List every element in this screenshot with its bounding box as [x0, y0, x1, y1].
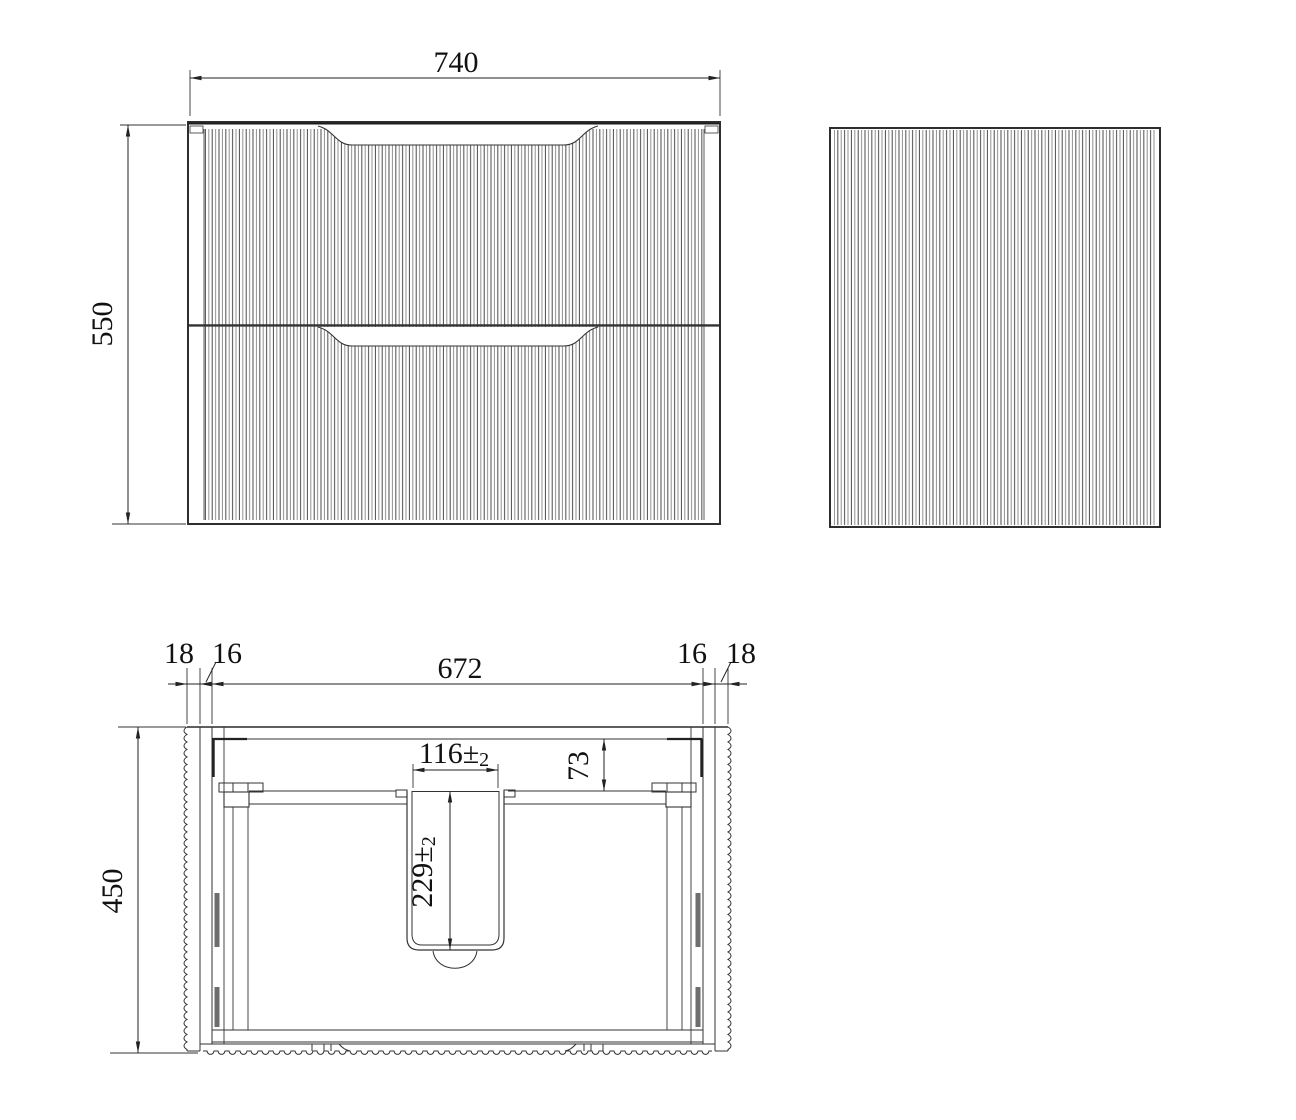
front-width-value: 740 — [434, 46, 479, 79]
side-view — [830, 128, 1160, 527]
gap-left-value: 16 — [212, 637, 242, 670]
technical-drawing-canvas: 740 550 — [0, 0, 1296, 1120]
drawing-sheet: 740 550 — [0, 0, 1296, 1120]
basin-width-tolerance: 2 — [479, 749, 489, 771]
panel-right-value: 18 — [726, 637, 756, 670]
right-drawer-slide — [696, 893, 701, 947]
basin-depth-value: 229±2 — [406, 836, 440, 907]
inner-width-value: 672 — [438, 652, 483, 685]
basin-depth-tolerance: 2 — [418, 836, 440, 846]
basin-depth-main: 229± — [406, 846, 439, 907]
basin-width-main: 116± — [419, 737, 479, 770]
basin-offset-value: 73 — [562, 751, 595, 781]
drawer1-handle-recess-fill — [318, 126, 598, 145]
front-view — [188, 122, 720, 524]
left-drawer-slide — [215, 987, 220, 1027]
panel-left-value: 18 — [164, 637, 194, 670]
front-top-right-corner-cap — [705, 126, 718, 133]
side-fluted-panel — [834, 130, 1156, 525]
front-height-value: 550 — [86, 302, 119, 347]
right-drawer-slide — [696, 987, 701, 1027]
left-drawer-slide — [215, 893, 220, 947]
drawer2-handle-recess-fill — [318, 327, 598, 346]
plan-depth-value: 450 — [96, 869, 129, 914]
front-top-left-corner-cap — [190, 126, 203, 133]
gap-right-value: 16 — [677, 637, 707, 670]
basin-width-value: 116±2 — [419, 737, 489, 771]
